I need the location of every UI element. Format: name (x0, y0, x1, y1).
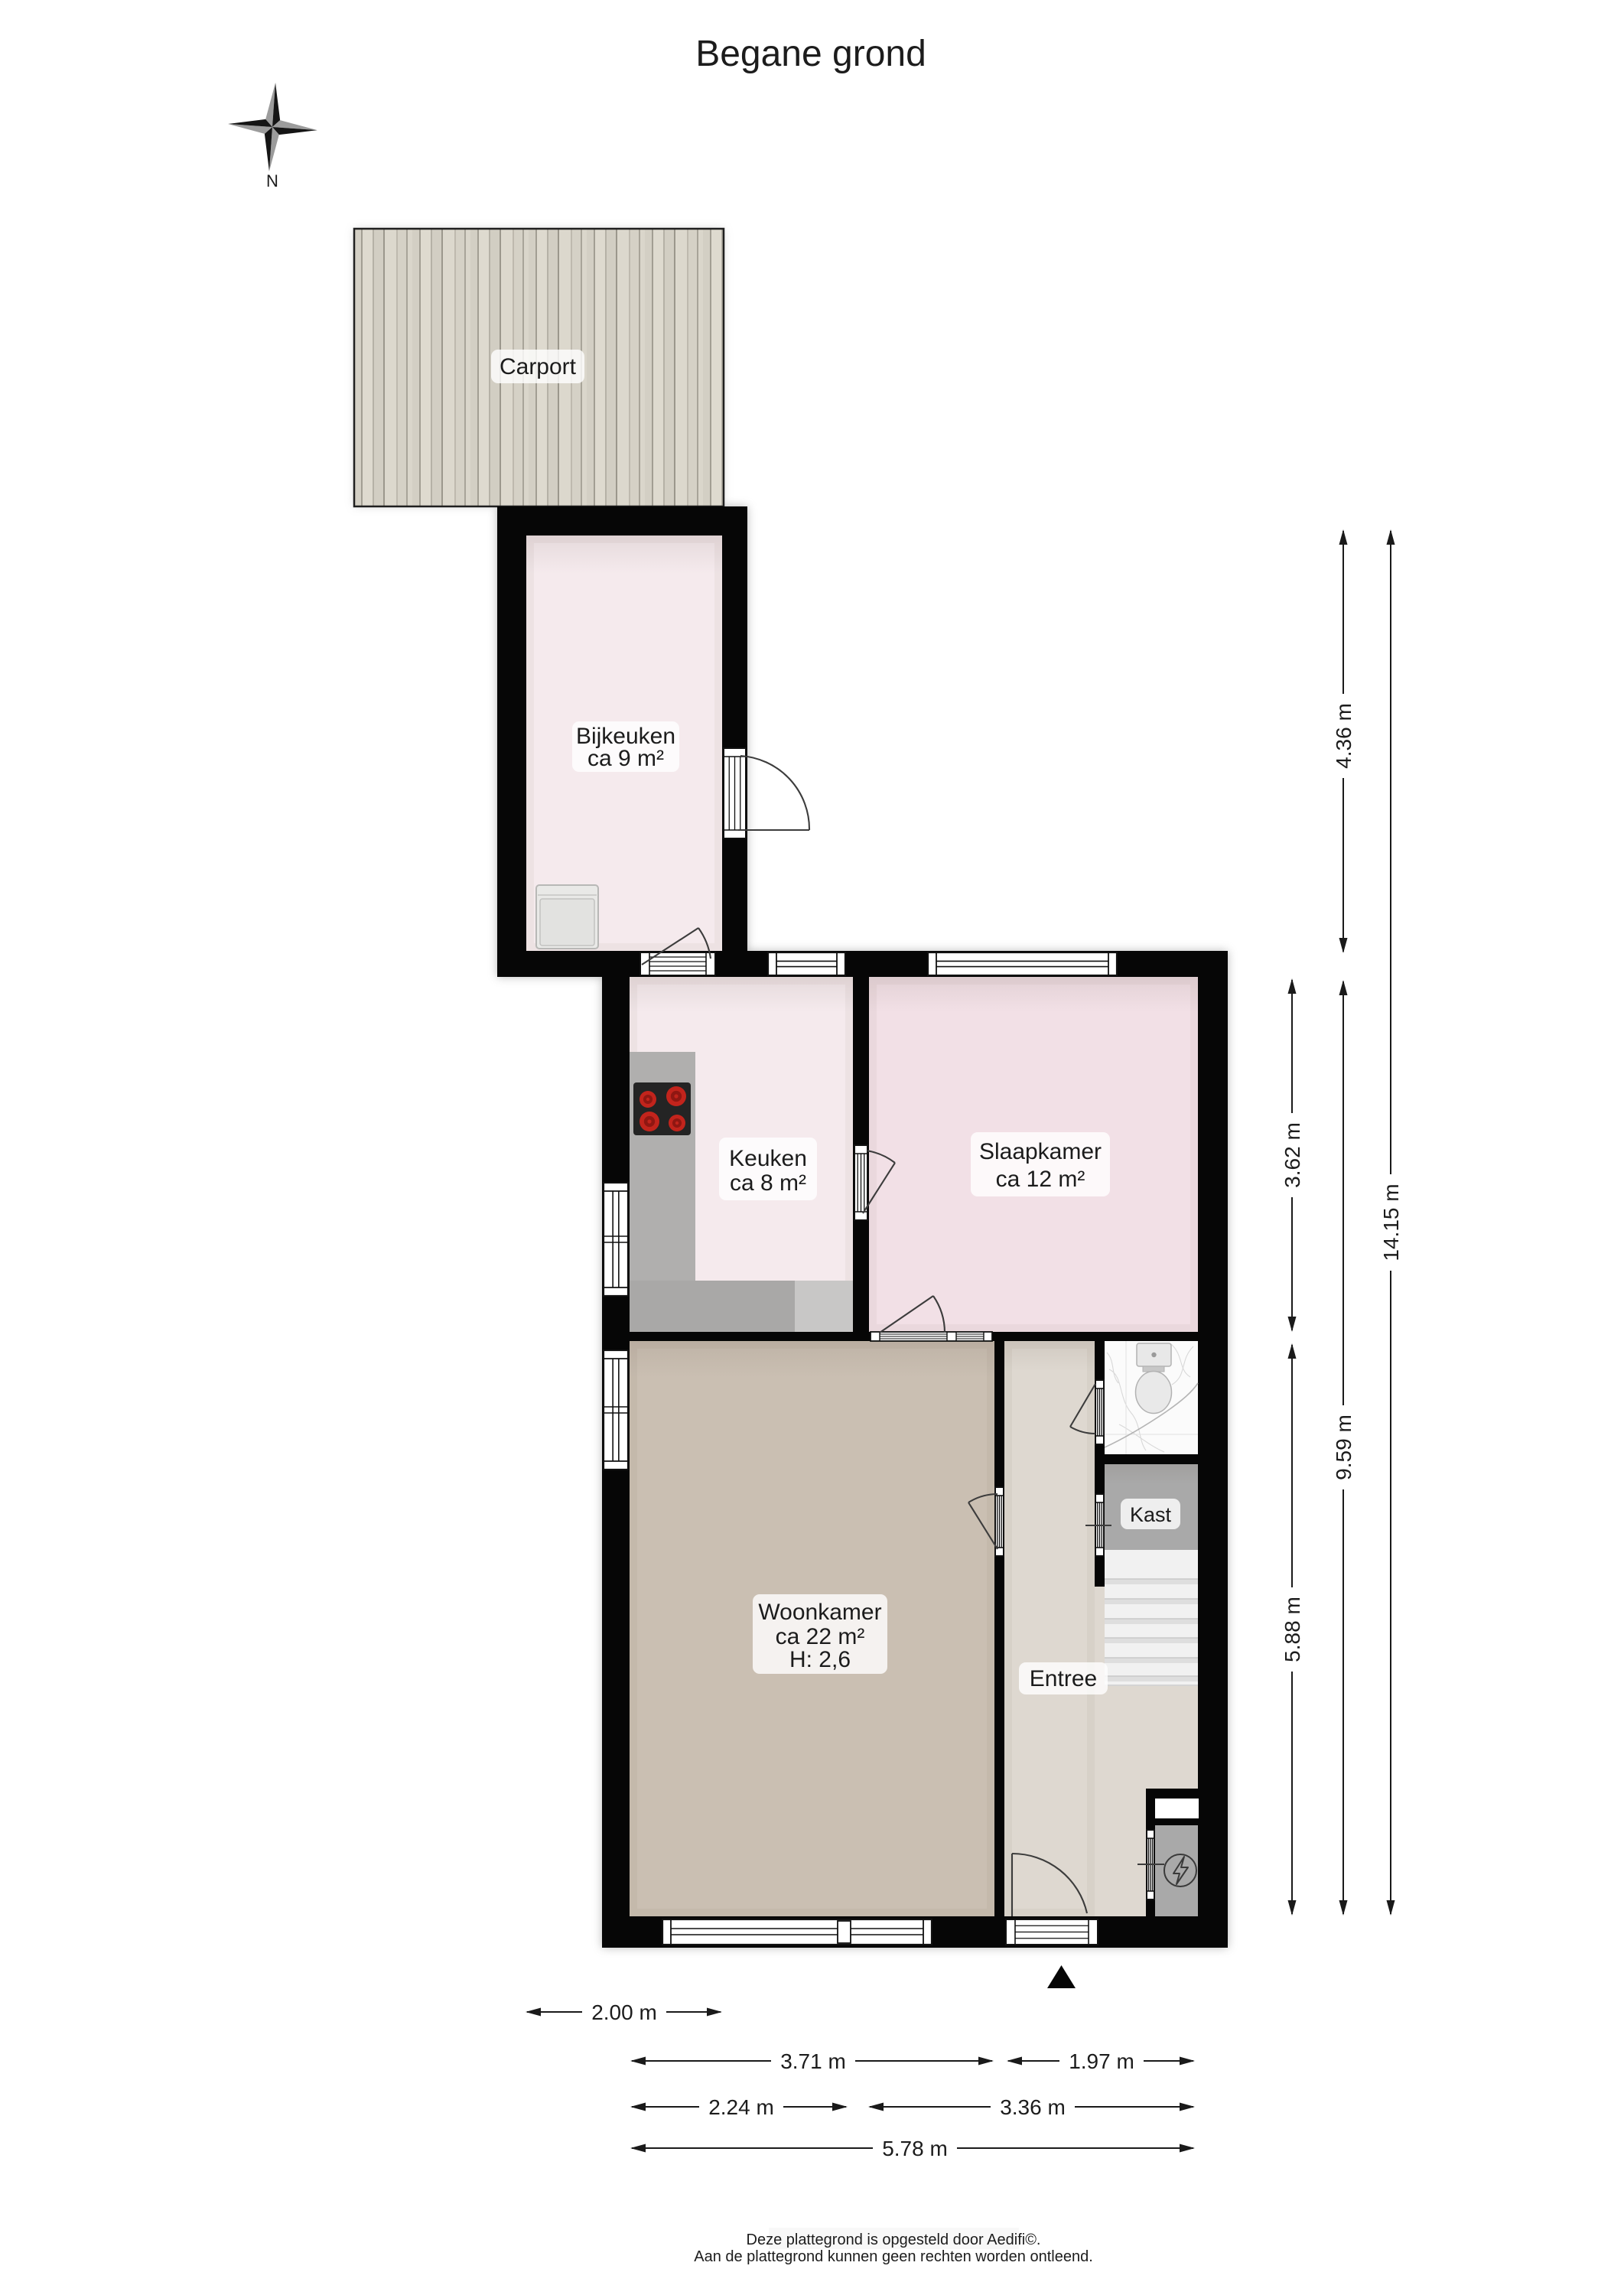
svg-text:2.00 m: 2.00 m (591, 2000, 657, 2024)
svg-text:H: 2,6: H: 2,6 (789, 1647, 851, 1672)
svg-text:ca 8 m²: ca 8 m² (730, 1170, 806, 1196)
svg-text:4.36 m: 4.36 m (1332, 703, 1356, 769)
svg-text:14.15 m: 14.15 m (1379, 1183, 1403, 1261)
svg-text:5.88 m: 5.88 m (1281, 1597, 1304, 1662)
svg-text:ca 12 m²: ca 12 m² (996, 1167, 1085, 1192)
svg-text:1.97 m: 1.97 m (1069, 2049, 1134, 2073)
svg-text:3.71 m: 3.71 m (780, 2049, 846, 2073)
svg-text:9.59 m: 9.59 m (1332, 1414, 1356, 1480)
svg-text:3.62 m: 3.62 m (1281, 1122, 1304, 1188)
svg-text:Kast: Kast (1130, 1503, 1172, 1526)
svg-text:Begane grond: Begane grond (695, 34, 926, 74)
svg-text:Aan de plattegrond kunnen geen: Aan de plattegrond kunnen geen rechten w… (694, 2248, 1093, 2265)
svg-text:Deze plattegrond is opgesteld: Deze plattegrond is opgesteld door Aedif… (747, 2232, 1041, 2248)
svg-text:Keuken: Keuken (729, 1146, 807, 1171)
svg-text:Woonkamer: Woonkamer (758, 1600, 881, 1625)
svg-text:2.24 m: 2.24 m (708, 2095, 774, 2119)
svg-text:Entree: Entree (1030, 1666, 1097, 1691)
svg-text:Carport: Carport (500, 354, 577, 379)
svg-text:3.36 m: 3.36 m (1000, 2095, 1066, 2119)
svg-text:ca 22 m²: ca 22 m² (776, 1624, 865, 1649)
svg-text:N: N (266, 171, 278, 190)
svg-text:Slaapkamer: Slaapkamer (979, 1139, 1102, 1164)
svg-text:5.78 m: 5.78 m (882, 2137, 948, 2160)
svg-text:ca 9 m²: ca 9 m² (587, 746, 664, 771)
